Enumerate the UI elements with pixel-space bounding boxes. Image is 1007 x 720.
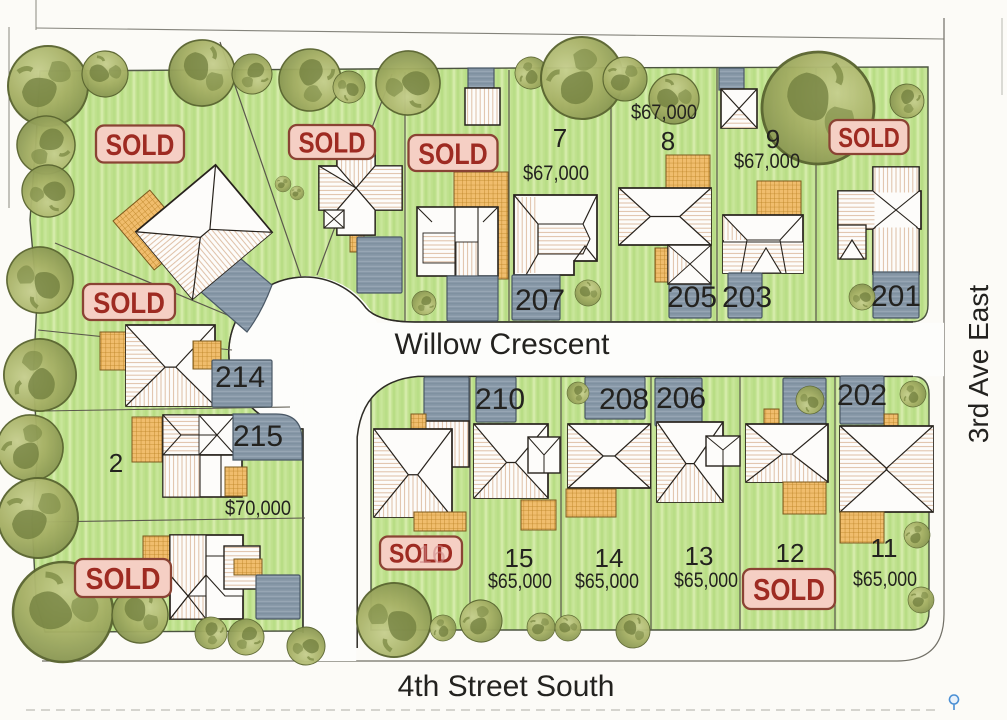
svg-text:Willow Crescent: Willow Crescent <box>394 328 610 361</box>
svg-text:11: 11 <box>871 533 898 563</box>
svg-text:$65,000: $65,000 <box>674 569 738 592</box>
svg-text:15: 15 <box>505 543 534 573</box>
svg-text:207: 207 <box>515 284 565 317</box>
svg-text:210: 210 <box>475 383 525 416</box>
svg-text:214: 214 <box>215 361 265 394</box>
svg-text:7: 7 <box>553 123 567 153</box>
svg-text:$65,000: $65,000 <box>853 568 917 591</box>
svg-text:205: 205 <box>667 281 717 314</box>
svg-text:3rd Ave East: 3rd Ave East <box>963 285 994 443</box>
svg-text:$67,000: $67,000 <box>631 101 697 124</box>
svg-text:203: 203 <box>722 281 772 314</box>
svg-text:SOLD: SOLD <box>753 572 825 607</box>
svg-text:201: 201 <box>871 280 921 313</box>
svg-text:SOLD: SOLD <box>106 129 175 162</box>
svg-text:$70,000: $70,000 <box>225 497 291 520</box>
svg-text:12: 12 <box>776 538 805 568</box>
svg-text:SOLD: SOLD <box>93 287 165 320</box>
svg-text:SOLD: SOLD <box>86 561 161 596</box>
svg-text:208: 208 <box>599 383 649 416</box>
svg-text:202: 202 <box>837 379 887 412</box>
svg-text:16: 16 <box>418 541 446 569</box>
svg-text:206: 206 <box>656 382 706 415</box>
svg-text:$65,000: $65,000 <box>488 570 552 593</box>
svg-text:4th Street South: 4th Street South <box>398 670 615 703</box>
svg-text:$67,000: $67,000 <box>734 150 800 173</box>
svg-text:SOLD: SOLD <box>838 122 900 153</box>
svg-text:SOLD: SOLD <box>418 138 487 171</box>
svg-text:$67,000: $67,000 <box>523 162 589 185</box>
svg-text:$65,000: $65,000 <box>575 570 639 593</box>
svg-text:2: 2 <box>109 448 123 478</box>
svg-text:14: 14 <box>595 543 624 573</box>
svg-text:215: 215 <box>233 420 283 453</box>
svg-text:13: 13 <box>685 541 714 571</box>
svg-text:SOLD: SOLD <box>298 127 365 159</box>
svg-text:8: 8 <box>661 126 675 156</box>
